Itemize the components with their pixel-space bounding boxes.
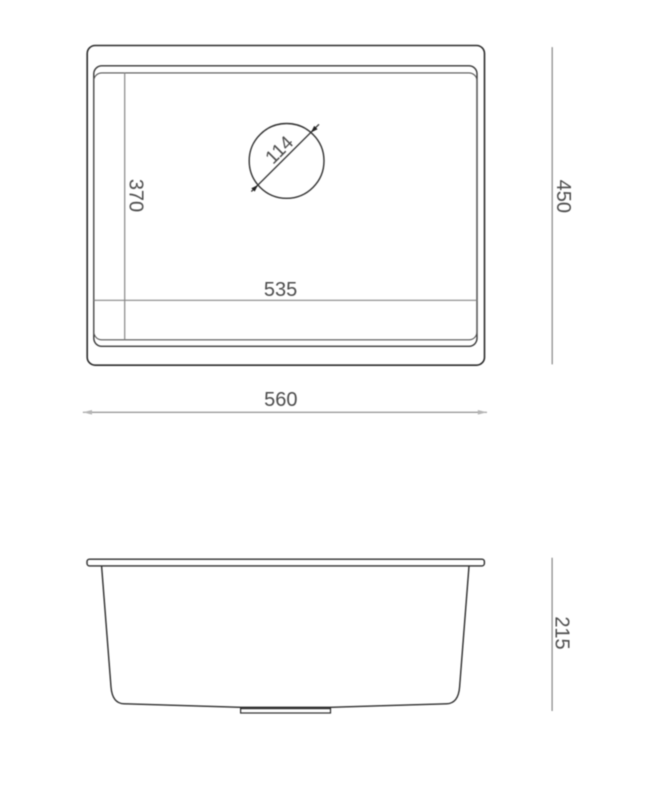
svg-text:535: 535 [264, 279, 297, 301]
svg-text:370: 370 [125, 179, 147, 212]
svg-text:215: 215 [551, 616, 573, 649]
svg-text:560: 560 [264, 389, 297, 411]
svg-text:450: 450 [552, 180, 574, 213]
